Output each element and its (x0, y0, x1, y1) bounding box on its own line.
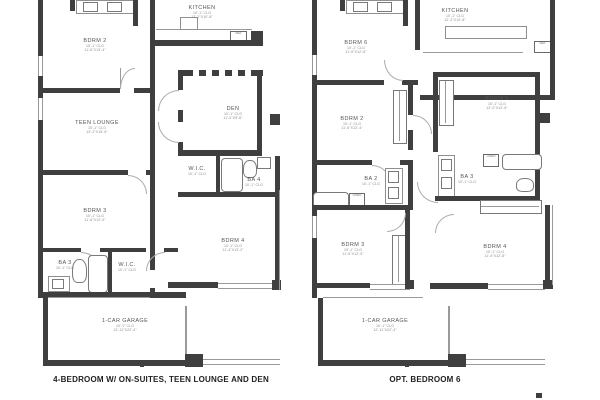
porch-line (552, 205, 553, 285)
room-label-den: DEN 10'-1" CLG 11'-0"X9'-6" (223, 106, 242, 120)
room-label-kitchen: KITCHEN 10'-1" CLG 12'-2"X10'-8" (442, 8, 469, 22)
room-label-garage: 1-CAR GARAGE 10'-1" CLG 12'-11"X22'-4" (102, 318, 148, 332)
wall-block (185, 354, 203, 367)
wall (38, 88, 120, 93)
wall (164, 248, 178, 252)
wall (535, 72, 540, 196)
wall (312, 283, 370, 288)
wall (312, 80, 384, 85)
wall (178, 192, 280, 197)
plan-caption-right: OPT. BEDROOM 6 (355, 375, 495, 384)
wall-tick (405, 360, 409, 367)
wardrobe-closet (393, 90, 407, 144)
window (312, 55, 317, 75)
room-size: 11'-6"X13'-4" (83, 48, 106, 52)
plan-caption-left: 4-BEDROOM W/ ON-SUITES, TEEN LOUNGE AND … (30, 375, 292, 384)
closet-line (481, 206, 539, 207)
window (38, 98, 43, 120)
sink (441, 177, 452, 189)
room-label-bdrm-5: BDRM 5 10'-1" CLG 12'-0"X12'-6" (485, 96, 508, 110)
door-arc (158, 122, 179, 143)
wall (318, 298, 323, 362)
wall (150, 0, 155, 45)
ref-text: REF (236, 31, 242, 35)
room-size: 11'-6"X12'-0" (341, 252, 364, 256)
sink (377, 2, 392, 12)
room-size: 12'-2"X10'-8" (442, 18, 469, 22)
room-size: 12'-2"X10'-8" (189, 15, 216, 19)
room-size: 11'-6"X12'-0" (83, 218, 106, 222)
wall (257, 70, 262, 150)
toilet (516, 178, 534, 192)
wall (150, 45, 155, 270)
porch-line (279, 190, 280, 290)
room-ceiling: 10'-1" CLG (56, 266, 74, 270)
window (312, 216, 317, 238)
room-label-bdrm-3: BDRM 3 10'-1" CLG 11'-6"X12'-0" (83, 208, 106, 222)
room-label-bdrm-4: BDRM 4 10'-1" CLG 11'-4"X12'-8" (483, 244, 506, 258)
room-size: 11'-4"X13'-2" (221, 248, 244, 252)
porch-column (538, 113, 550, 123)
room-label-ba-2: BA 2 10'-1" CLG (362, 176, 380, 186)
wall (100, 248, 146, 252)
wall (108, 252, 112, 294)
door-arc (384, 60, 403, 81)
door-arc (158, 90, 179, 111)
door-arc (435, 214, 454, 233)
room-ceiling: 10'-1" CLG (188, 172, 206, 176)
wall (408, 165, 413, 210)
wall (340, 0, 345, 11)
sink (441, 159, 452, 171)
porch-column (270, 114, 280, 125)
toilet (72, 259, 87, 283)
floor-plan-left: REF KITCHEN 10 (30, 0, 282, 372)
door-arc (120, 68, 135, 89)
floor-plan-right: REF LINEN LINEN (305, 0, 567, 372)
bathtub (221, 158, 243, 192)
room-label-ba-3: BA 3 10'-1" CLG (458, 174, 476, 184)
kitchen-counter-line (156, 29, 252, 30)
room-label-wic-lower: W.I.C. 10'-1" CLG (118, 262, 136, 272)
wall-block (448, 354, 466, 367)
sink (257, 157, 271, 169)
window (370, 284, 410, 290)
room-ceiling: 10'-1" CLG (245, 183, 263, 187)
wall (405, 210, 410, 285)
room-label-bdrm-3: BDRM 3 10'-1" CLG 11'-6"X12'-0" (341, 242, 364, 256)
garage-door-jamb (448, 306, 450, 356)
room-size: 12'-11"X22'-4" (362, 328, 408, 332)
wall (550, 0, 555, 100)
wall (43, 298, 48, 362)
wall (178, 150, 262, 156)
wall (545, 205, 550, 288)
wall-tick (140, 360, 144, 367)
room-label-teen-lounge: TEEN LOUNGE 10'-1" CLG 13'-2"X15'-6" (75, 120, 119, 134)
window (218, 283, 272, 289)
wall (38, 0, 43, 298)
sink (107, 2, 122, 12)
room-size: 11'-4"X12'-8" (483, 254, 506, 258)
room-size: 12'-0"X12'-6" (485, 106, 508, 110)
wall (312, 160, 372, 165)
toilet (243, 160, 257, 178)
kitchen-island (445, 26, 527, 39)
closet-line (445, 81, 446, 123)
wall (38, 170, 128, 175)
room-ceiling: 10'-1" CLG (458, 180, 476, 184)
room-label-bdrm-2: BDRM 2 10'-1" CLG 11'-6"X13'-4" (83, 38, 106, 52)
bathtub (502, 154, 542, 170)
room-label-bdrm-4: BDRM 4 10'-1" CLG 11'-4"X13'-2" (221, 238, 244, 252)
room-label-bdrm-2: BDRM 2 10'-1" CLG 11'-6"X12'-4" (340, 116, 363, 130)
room-label-kitchen: KITCHEN 10'-1" CLG 12'-2"X10'-8" (189, 5, 216, 19)
door-arc (387, 213, 406, 232)
wall (70, 0, 75, 11)
room-label-ba-3: BA 3 10'-1" CLG (56, 260, 74, 270)
door-arc (146, 252, 165, 271)
room-size: 11'-6"X12'-4" (340, 126, 363, 130)
wall (312, 205, 413, 210)
wall (435, 72, 540, 77)
wardrobe-closet (439, 80, 454, 126)
room-label-bdrm-6: BDRM 6 10'-1" CLG 11'-6"X12'-6" (344, 40, 367, 54)
window (488, 284, 545, 290)
garage-door-jamb (185, 306, 187, 356)
door-arc (413, 115, 432, 134)
wall (43, 248, 81, 252)
wall (415, 0, 420, 50)
linen-label: LINEN (483, 154, 499, 167)
dashed-window-wall (186, 70, 255, 76)
room-label-ba-4: BA 4 10'-1" CLG (245, 177, 263, 187)
wall (133, 0, 138, 26)
room-size: 12'-11"X22'-4" (102, 328, 148, 332)
floor-plan-sheet: { "colors": {"wall":"#3f3f3f","line":"#9… (0, 0, 600, 400)
room-size: 13'-2"X15'-6" (75, 130, 119, 134)
ref-text: REF (540, 41, 546, 45)
linen-text: LINEN (487, 154, 496, 158)
garage-line (48, 297, 150, 298)
linen-text: LINEN (353, 193, 362, 197)
sink (52, 279, 64, 289)
room-ceiling: 10'-1" CLG (118, 268, 136, 272)
wall (168, 282, 218, 288)
room-size: 11'-0"X9'-6" (223, 116, 242, 120)
wall-block (405, 280, 414, 289)
ref-label: REF (534, 41, 551, 53)
wall (403, 0, 408, 26)
wall (155, 40, 254, 46)
room-size: 11'-6"X12'-6" (344, 50, 367, 54)
porch-edge (466, 359, 545, 365)
window (38, 56, 43, 76)
room-label-garage: 1-CAR GARAGE 10'-1" CLG 12'-11"X22'-4" (362, 318, 408, 332)
wall (43, 360, 185, 366)
bathtub (88, 255, 108, 293)
closet-line (399, 91, 400, 141)
porch-edge (203, 359, 280, 365)
room-ceiling: 10'-1" CLG (362, 182, 380, 186)
wall (318, 360, 448, 366)
wall-block (251, 31, 263, 46)
wall (178, 110, 183, 122)
wall (216, 156, 220, 192)
room-label-wic: W.I.C. 10'-1" CLG (188, 166, 206, 176)
wall (134, 88, 150, 93)
kitchen-counter-line (423, 52, 523, 53)
sink (353, 2, 368, 12)
door-arc (128, 175, 147, 194)
wall (178, 76, 183, 90)
garage-line (323, 297, 423, 298)
wall (146, 170, 155, 175)
wall (312, 0, 317, 298)
sink (388, 171, 399, 183)
sink (83, 2, 98, 12)
wall (430, 283, 488, 289)
closet-line (398, 236, 399, 282)
wall (408, 85, 413, 115)
wardrobe-closet (480, 200, 542, 214)
wall (433, 72, 438, 152)
page-marker (536, 393, 542, 398)
sink (388, 187, 399, 199)
